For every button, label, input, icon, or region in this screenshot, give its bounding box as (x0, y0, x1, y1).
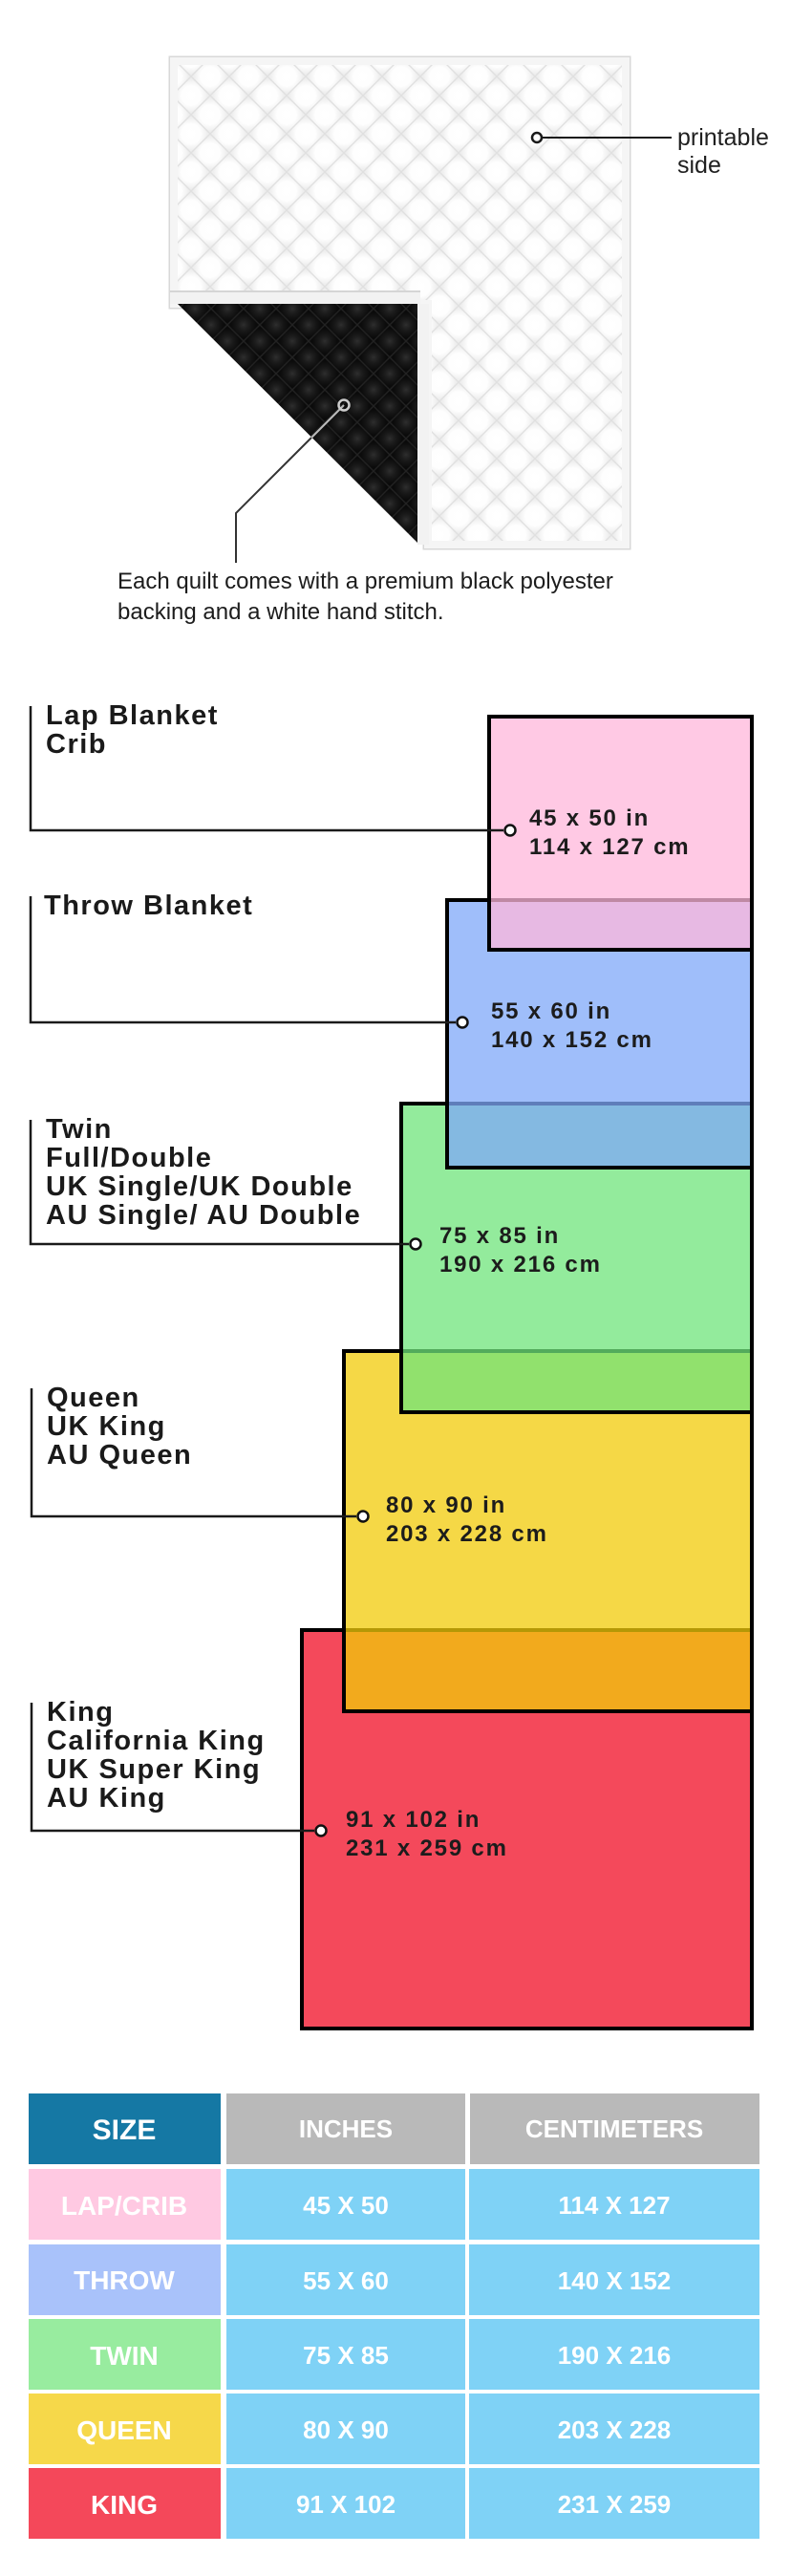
svg-text:Throw Blanket: Throw Blanket (44, 891, 253, 921)
svg-text:UK King: UK King (47, 1411, 166, 1442)
svg-text:55 X 60: 55 X 60 (303, 2266, 389, 2295)
svg-text:Queen: Queen (47, 1383, 140, 1413)
svg-text:California King: California King (47, 1726, 266, 1756)
svg-text:190 x 216 cm: 190 x 216 cm (439, 1252, 602, 1277)
svg-text:AU Single/ AU Double: AU Single/ AU Double (46, 1200, 361, 1231)
svg-text:114 x 127 cm: 114 x 127 cm (529, 834, 690, 860)
svg-text:45 x 50 in: 45 x 50 in (529, 805, 650, 831)
svg-text:75 X 85: 75 X 85 (303, 2341, 389, 2370)
svg-text:75 x 85 in: 75 x 85 in (439, 1223, 560, 1249)
svg-text:AU Queen: AU Queen (47, 1440, 192, 1470)
svg-text:80 X 90: 80 X 90 (303, 2415, 389, 2444)
svg-text:203 X 228: 203 X 228 (558, 2415, 672, 2444)
svg-text:CENTIMETERS: CENTIMETERS (525, 2114, 703, 2143)
svg-text:140 X 152: 140 X 152 (558, 2266, 672, 2295)
svg-text:Full/Double: Full/Double (46, 1143, 212, 1173)
svg-text:UK Super King: UK Super King (47, 1754, 261, 1785)
svg-text:INCHES: INCHES (299, 2114, 393, 2143)
svg-text:91 X 102: 91 X 102 (296, 2490, 395, 2519)
svg-text:AU King: AU King (47, 1783, 166, 1814)
svg-text:SIZE: SIZE (93, 2114, 157, 2146)
svg-text:THROW: THROW (74, 2265, 175, 2295)
svg-text:printable: printable (677, 124, 769, 151)
svg-text:LAP/CRIB: LAP/CRIB (61, 2191, 187, 2221)
svg-text:Each quilt comes with a premiu: Each quilt comes with a premium black po… (118, 569, 613, 594)
svg-text:King: King (47, 1697, 114, 1728)
svg-text:231 X 259: 231 X 259 (558, 2490, 672, 2519)
svg-text:231 x 259 cm: 231 x 259 cm (346, 1835, 508, 1861)
svg-text:91 x 102 in: 91 x 102 in (346, 1807, 481, 1833)
svg-text:side: side (677, 152, 721, 179)
svg-text:UK Single/UK Double: UK Single/UK Double (46, 1171, 353, 1202)
svg-text:140 x 152 cm: 140 x 152 cm (491, 1027, 653, 1053)
svg-text:55 x 60 in: 55 x 60 in (491, 998, 611, 1024)
svg-text:backing and a white hand stitc: backing and a white hand stitch. (118, 599, 444, 625)
svg-text:203 x 228 cm: 203 x 228 cm (386, 1521, 548, 1547)
svg-text:Crib: Crib (46, 729, 107, 760)
svg-text:KING: KING (91, 2490, 158, 2520)
svg-text:190 X 216: 190 X 216 (558, 2341, 672, 2370)
svg-text:QUEEN: QUEEN (76, 2415, 172, 2445)
svg-text:45 X 50: 45 X 50 (303, 2191, 389, 2220)
svg-text:Twin: Twin (46, 1114, 113, 1145)
svg-text:Lap Blanket: Lap Blanket (46, 700, 219, 731)
svg-text:80 x 90 in: 80 x 90 in (386, 1492, 506, 1518)
svg-text:TWIN: TWIN (90, 2341, 159, 2371)
svg-text:114 X 127: 114 X 127 (558, 2191, 670, 2220)
